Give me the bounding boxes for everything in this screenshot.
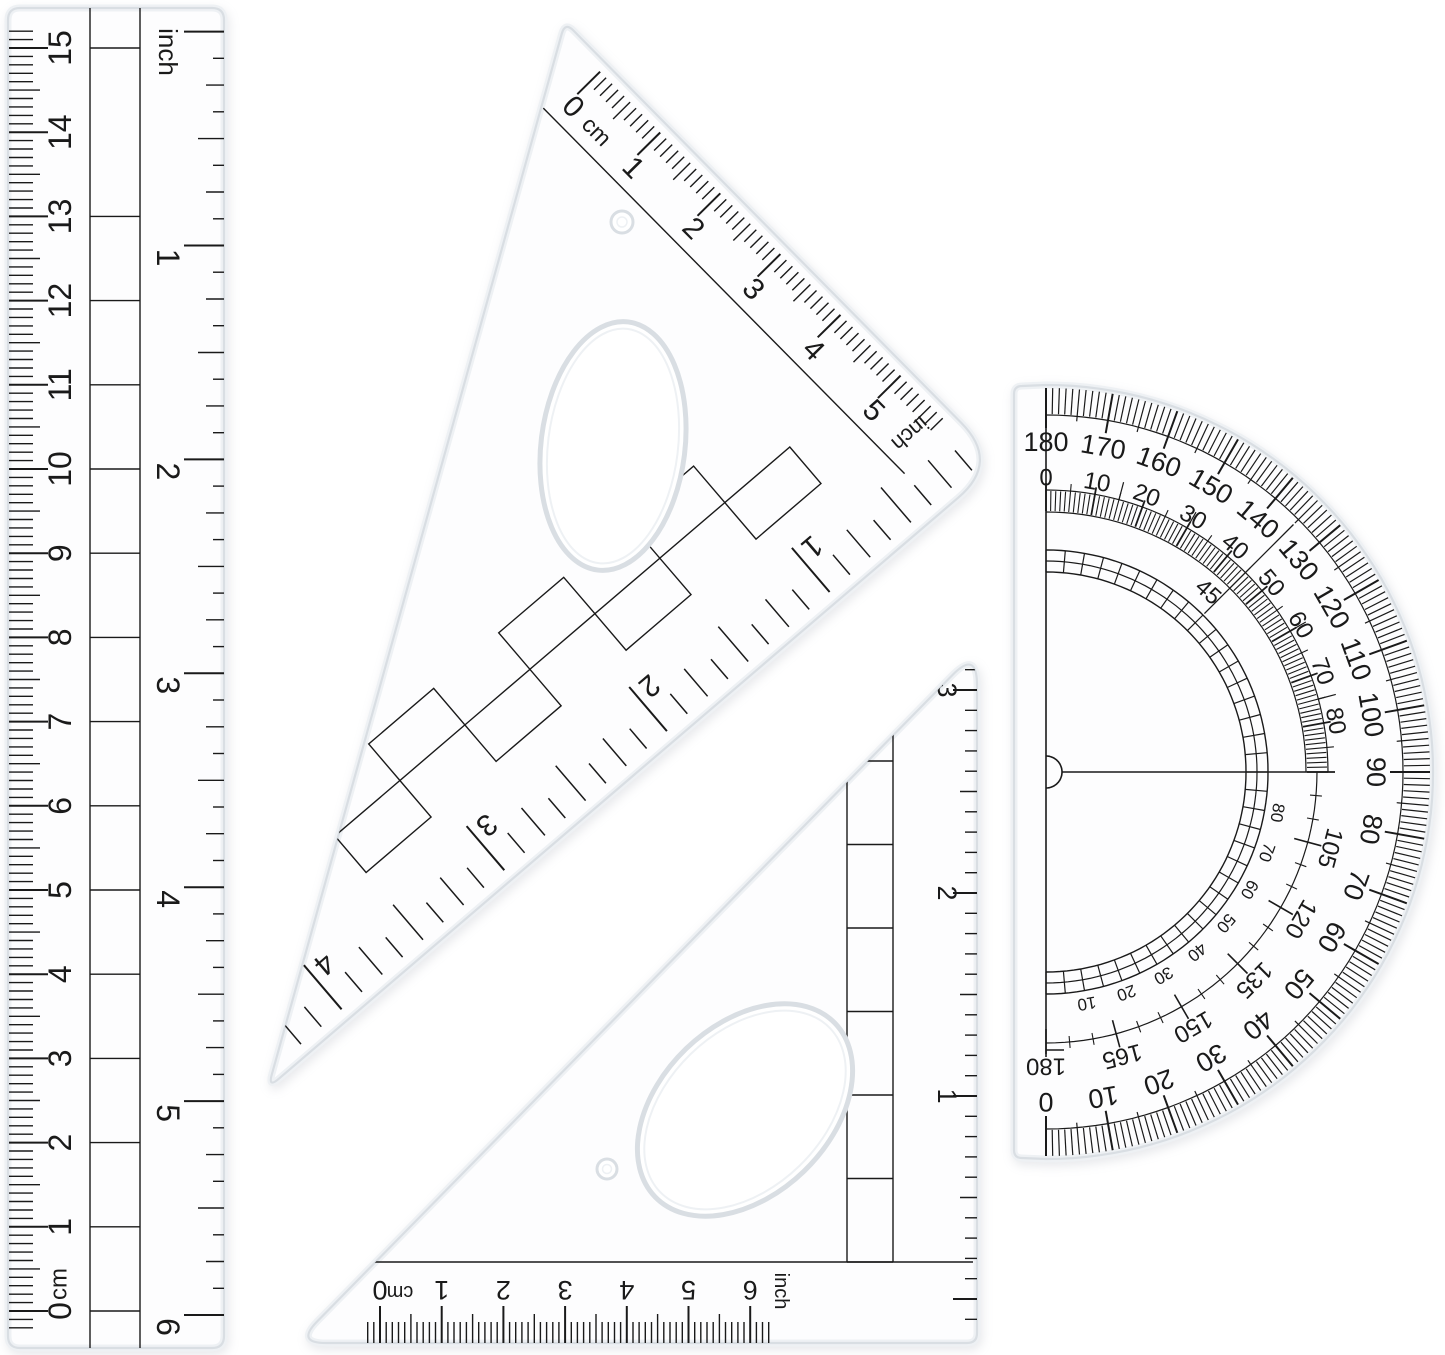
pin-hole-icon: [597, 1159, 617, 1179]
small-cm-label: 0: [372, 1275, 387, 1305]
ruler-cm-label: 4: [42, 965, 78, 983]
ruler-cm-label: 14: [42, 114, 78, 150]
ruler-cm-label: 6: [42, 797, 78, 815]
ruler-body: [8, 8, 224, 1348]
geometry-set-photo: 0123456789101112131415cm123456inch 01234…: [0, 0, 1445, 1355]
ruler-cm-label: 7: [42, 713, 78, 731]
ruler-cm-label: 8: [42, 629, 78, 647]
small-cm-label: 2: [496, 1275, 511, 1305]
small-pin-hole: [597, 1159, 617, 1179]
tick: [1404, 778, 1430, 779]
ruler-cm-label: 3: [42, 1050, 78, 1068]
ruler-cm-label: 13: [42, 199, 78, 235]
protractor-outer-label: 10: [1086, 1080, 1121, 1115]
ruler-cm-label: 15: [42, 30, 78, 66]
small-cm-unit: cm: [387, 1281, 414, 1303]
large-pin-hole: [611, 211, 633, 233]
tick: [1404, 765, 1430, 766]
ruler-cm-label: 10: [42, 451, 78, 487]
ruler-cm-label: 5: [42, 881, 78, 899]
protractor-outer-label: 90: [1361, 757, 1391, 787]
ruler-cm-label: 0: [42, 1302, 78, 1320]
tick: [1055, 491, 1056, 511]
protractor-band-label: 10: [1076, 992, 1098, 1014]
small-inch-unit: inch: [770, 1273, 792, 1310]
ruler-cm-label: 1: [42, 1218, 78, 1236]
protractor-outer-label: 80: [1354, 812, 1389, 847]
tick: [1052, 388, 1053, 414]
ruler-cm-label: 9: [42, 544, 78, 562]
ruler-cm-label: 11: [42, 368, 78, 401]
small-inch-label: 1: [932, 1088, 962, 1103]
ruler-inch-label: 4: [150, 890, 186, 908]
ruler-cm-label: 2: [42, 1134, 78, 1152]
pin-hole-icon: [611, 211, 633, 233]
ruler-inch-unit: inch: [153, 28, 183, 76]
ruler-cm-unit: cm: [46, 1268, 73, 1300]
small-cm-label: 3: [558, 1275, 573, 1305]
ruler: 0123456789101112131415cm123456inch: [8, 8, 224, 1348]
protractor-inner-bottom-label: 180: [1026, 1053, 1066, 1080]
small-inch-label: 2: [932, 885, 962, 900]
tick: [1052, 1130, 1053, 1156]
protractor-outer-label: 0: [1038, 1087, 1053, 1117]
ruler-inch-label: 5: [150, 1104, 186, 1122]
small-cm-label: 1: [434, 1275, 449, 1305]
protractor: 0102030405060708090100110120130140150160…: [1014, 385, 1433, 1159]
small-cm-label: 5: [681, 1275, 696, 1305]
ruler-inch-label: 6: [150, 1318, 186, 1336]
ruler-cm-label: 12: [42, 283, 78, 319]
protractor-inner-top-label: 10: [1082, 467, 1113, 498]
ruler-inch-label: 1: [150, 249, 186, 267]
ruler-inch-label: 2: [150, 463, 186, 481]
small-cm-label: 6: [743, 1275, 758, 1305]
protractor-inner-top-label: 80: [1320, 705, 1351, 736]
protractor-band-label: 80: [1266, 802, 1288, 824]
ruler-inch-label: 3: [150, 676, 186, 694]
scene-canvas: 0123456789101112131415cm123456inch 01234…: [0, 0, 1445, 1355]
tick: [1307, 762, 1327, 763]
small-cm-label: 4: [619, 1275, 634, 1305]
